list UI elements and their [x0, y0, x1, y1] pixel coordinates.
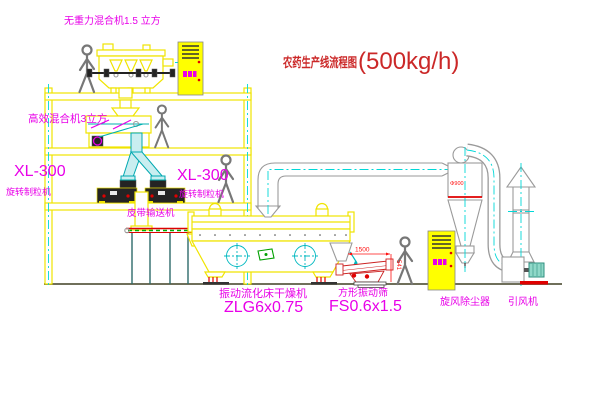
label-cyclone: 旋风除尘器	[440, 295, 490, 308]
sieve-height-dimension: 541	[395, 260, 401, 271]
label-floor-mixer: 高效混合机3立方	[28, 112, 107, 125]
vibrating-sieve: 1500 541	[330, 243, 401, 288]
rotary-granulator-left	[97, 180, 137, 204]
label-dryer-model: ZLG6x0.75	[224, 299, 303, 316]
label-belt-conveyor: 皮带输送机	[127, 207, 175, 219]
label-dryer-name: 振动流化床干燥机	[219, 286, 307, 300]
label-sieve-model: FS0.6x1.5	[329, 298, 402, 315]
label-granulator-right-model: XL-300	[177, 167, 229, 184]
exhaust-duct	[256, 163, 462, 217]
label-granulator-right-name: 旋转制粒机	[179, 188, 224, 199]
sieve-length-dimension: 1500	[355, 247, 370, 254]
diagram-canvas: Φ900	[0, 0, 600, 403]
worker-figure-floor2	[155, 105, 168, 147]
process-flow-diagram: Φ900	[0, 0, 600, 403]
diagram-title: 农药生产线流程图 (500kg/h)	[282, 48, 459, 75]
label-granulator-left-model: XL-300	[14, 163, 66, 180]
control-cabinet-2	[428, 231, 455, 290]
title-capacity: (500kg/h)	[358, 48, 459, 75]
label-granulator-left-name: 旋转制粒机	[6, 186, 51, 197]
cyclone-diameter-note: Φ900	[450, 181, 464, 187]
title-text: 农药生产线流程图	[282, 55, 357, 70]
roof-discharge-pipe	[119, 88, 132, 98]
control-cabinet-1	[178, 42, 203, 95]
label-top-mixer: 无重力混合机1.5 立方	[64, 14, 161, 27]
belt-conveyor	[125, 228, 197, 284]
label-fan: 引风机	[508, 295, 538, 308]
